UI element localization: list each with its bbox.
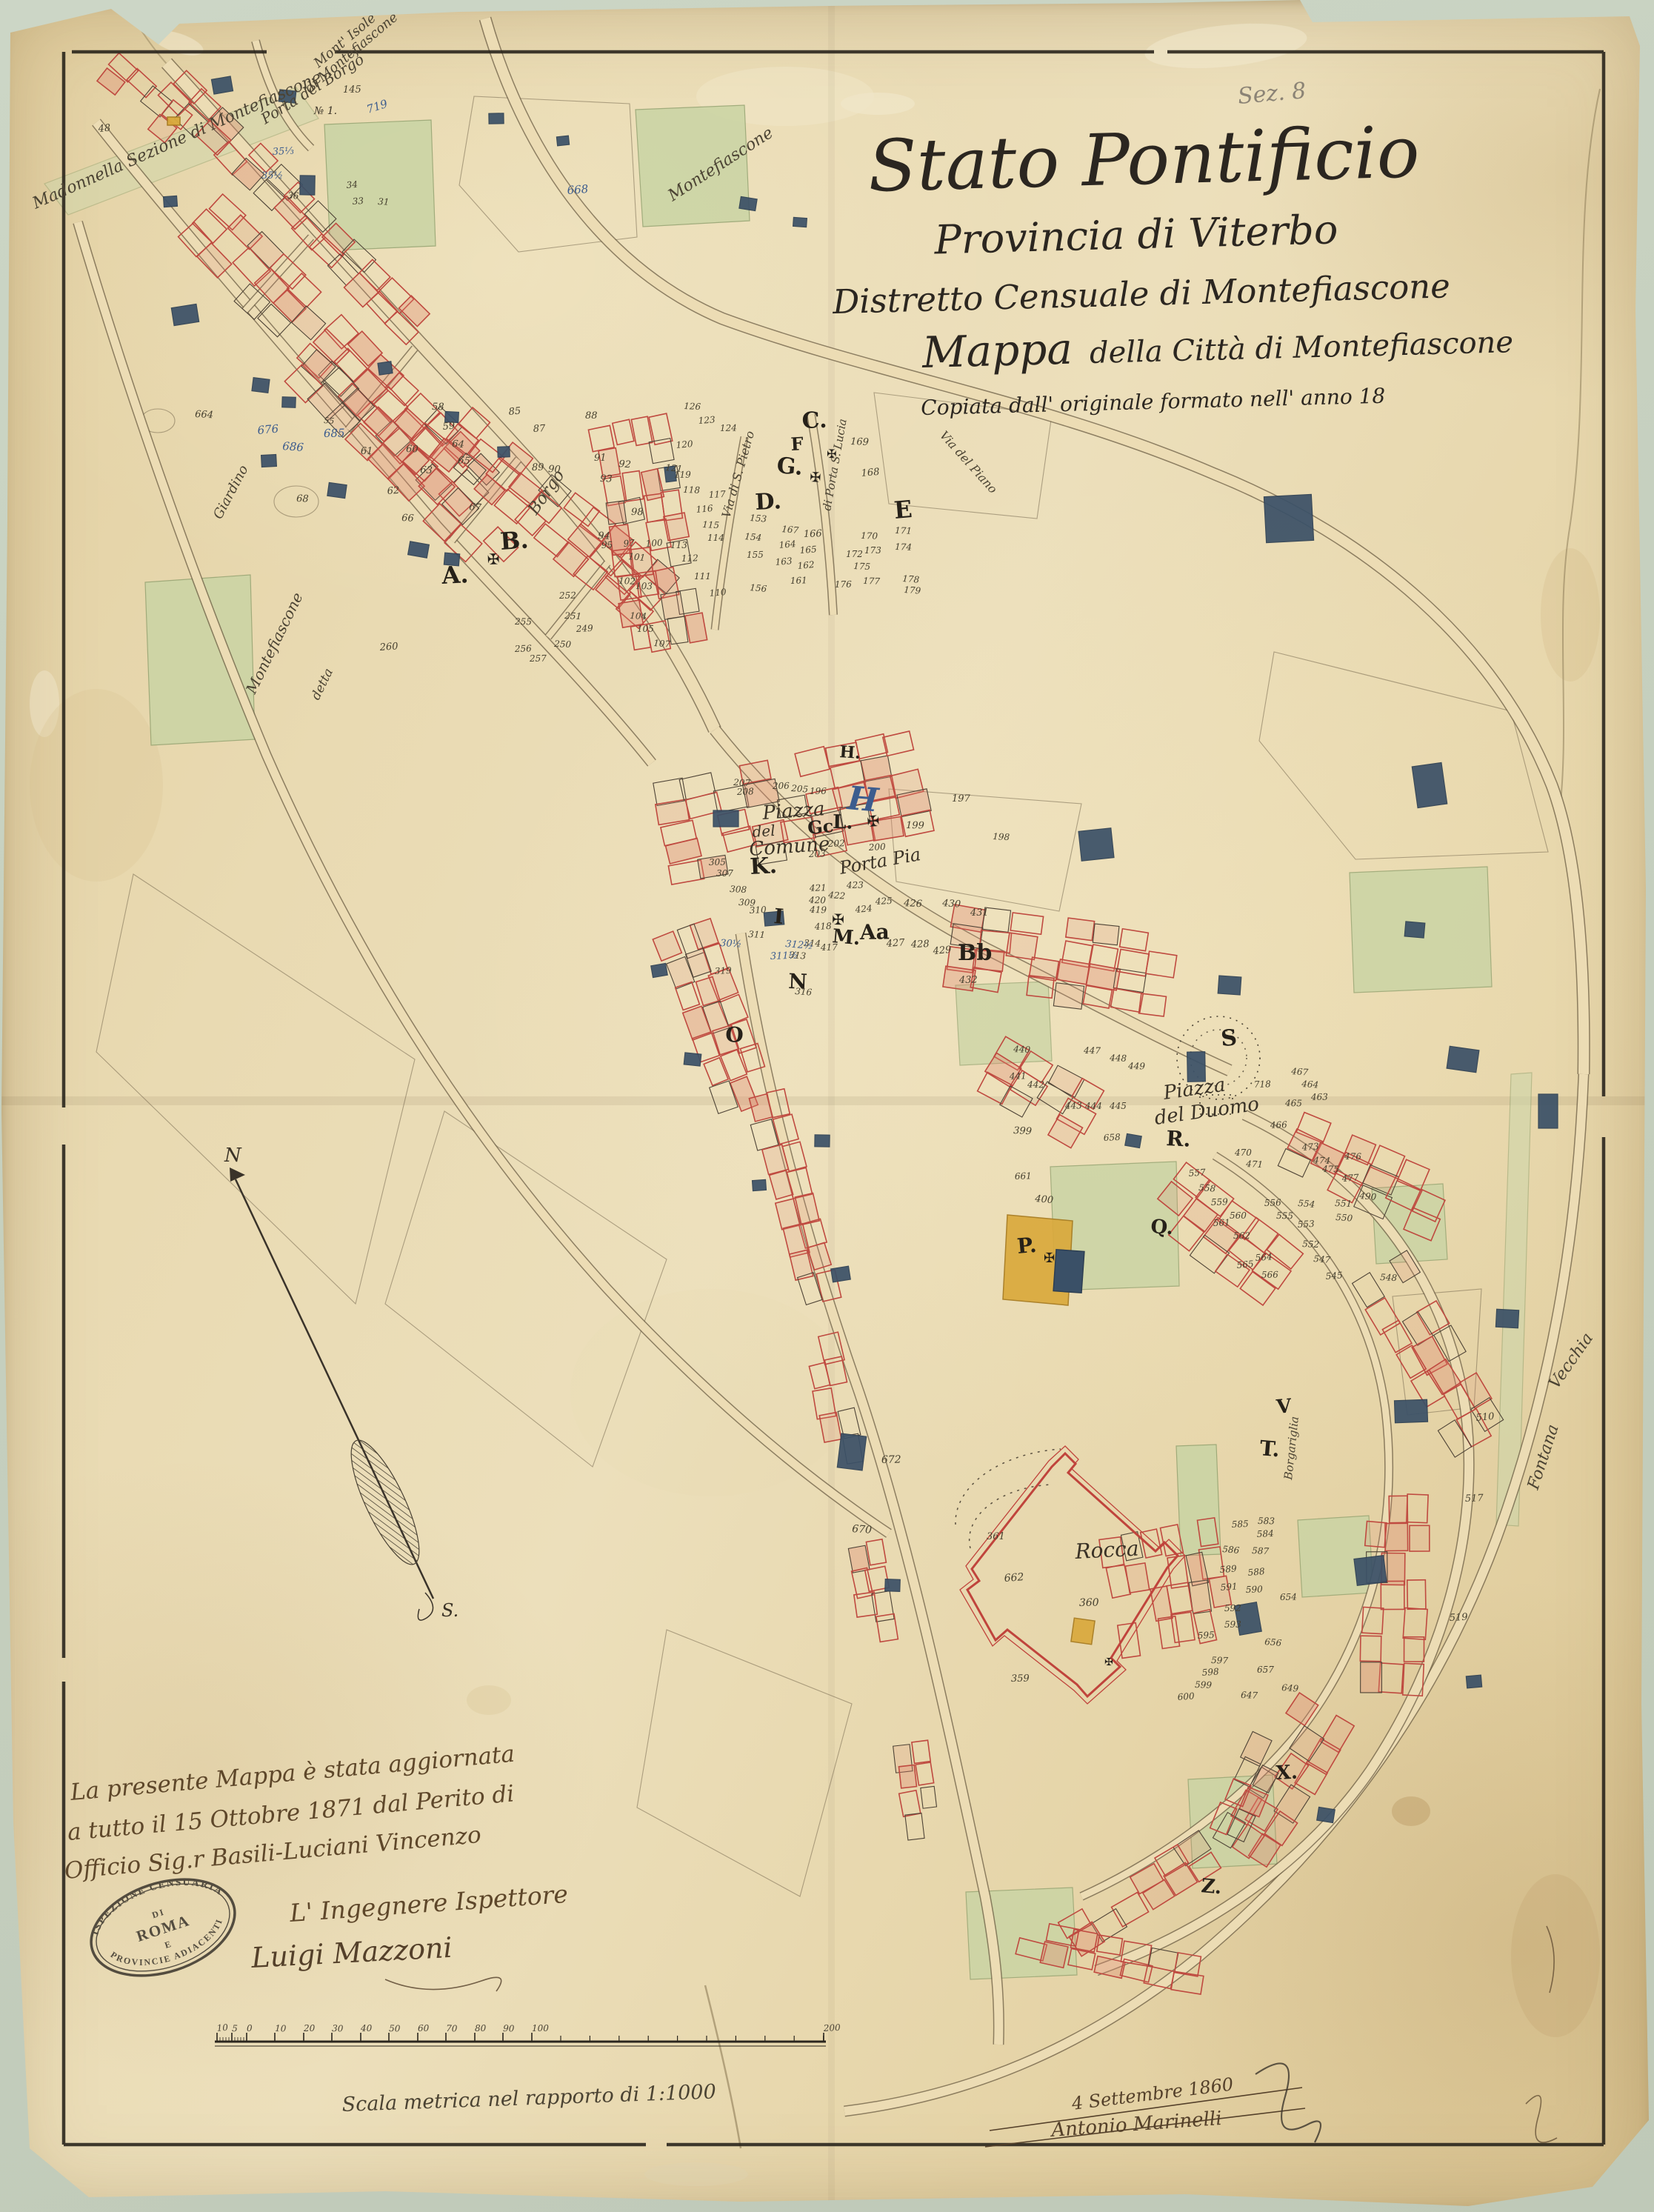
ink-flourish [1255,2063,1321,2142]
building [739,196,757,210]
map-label: 308 [730,884,747,895]
parcel [704,1058,728,1086]
building [1264,494,1313,542]
arrow-feather [339,1433,432,1573]
map-label: 559 [1211,1196,1229,1207]
parcel [1404,1637,1424,1662]
map-label: 111 [694,571,711,582]
map-label: 440 [1013,1044,1031,1055]
map-label: 444 [1084,1101,1102,1111]
map-label: X. [1275,1762,1298,1785]
map-label: 58 [432,402,444,413]
map-label: E [893,495,913,524]
parcel [622,471,643,502]
parcel [1403,1608,1427,1639]
map-label: B. [499,525,530,556]
map-label: 466 [1270,1119,1288,1130]
map-label: 167 [781,524,799,536]
map-label: 432 [958,975,978,986]
parcel [1378,1663,1403,1693]
parcel [916,1762,934,1785]
parcel [127,69,156,98]
map-label: 35⅓ [272,145,294,158]
map-label: 647 [1241,1690,1258,1701]
map-label: 475 [1321,1164,1339,1174]
parcel [1066,918,1095,940]
building [1218,976,1241,995]
map-label: 519 [1449,1612,1468,1624]
map-label: 98 [631,507,644,518]
map-label: 600 [1177,1690,1195,1702]
parcel [1093,924,1119,945]
map-label: 476 [1344,1151,1362,1162]
map-label: 672 [881,1454,901,1466]
map-label: 124 [720,423,737,433]
building [1404,922,1425,938]
map-label: 90 [548,464,561,476]
parcel [848,1545,870,1573]
title-district: Distretto Censuale di Montefiascone [831,266,1450,322]
signature-flourish [385,1977,501,1991]
map-label: 445 [1109,1101,1127,1111]
map-label: 103 [636,581,653,591]
parcel-block [892,1740,941,1841]
map-label: 661 [1015,1170,1032,1182]
parcel [588,425,614,451]
parcel [1120,929,1149,951]
map-label: 556 [1264,1197,1282,1208]
stamp-text-e: E [163,1939,173,1951]
update-note: La presente Mappa è stata aggiornata a t… [64,1741,570,1991]
map-label: 599 [1195,1679,1213,1690]
parcel [721,1050,747,1081]
map-label: 592 [1224,1603,1241,1613]
map-label: Gc [807,815,835,839]
map-label: Via del Piano [937,428,1000,496]
map-label: 662 [1004,1571,1024,1585]
building [885,1579,901,1592]
map-label: 361 [987,1531,1005,1542]
map-label: 179 [904,584,921,596]
map-label: 153 [750,513,767,524]
map-label: 473 [1301,1141,1319,1153]
parcel [876,1614,898,1642]
parcel [653,931,681,961]
map-label: 115 [702,519,720,530]
map-label: 5 [232,2023,238,2033]
map-label: 431 [970,907,989,919]
map-label: 162 [797,559,815,571]
map-label: 656 [1264,1636,1282,1648]
map-label: 88 [585,410,598,422]
map-label: 169 [850,436,869,448]
map-label: 48 [97,123,111,135]
map-label: 113 [670,540,687,550]
map-label: 61 [361,446,373,457]
building [1317,1807,1335,1822]
map-label: 30½ [720,938,742,950]
map-label: R. [1166,1126,1192,1152]
map-label: T. [1258,1436,1281,1462]
map-label: 719 [365,97,390,116]
map-label: 120 [676,439,693,450]
map-label: 170 [861,530,878,542]
map-label: 718 [1254,1079,1272,1090]
map-label: 557 [1188,1167,1206,1179]
map-label: 199 [906,820,924,831]
map-label: 565 [1236,1259,1254,1270]
map-label: 91 [594,453,607,464]
map-label: 208 [736,786,755,797]
title-state: Stato Pontificio [867,110,1421,207]
map-label: 89 [532,462,544,473]
building [164,196,178,207]
map-label: 676 [257,422,280,437]
map-label: 168 [861,467,880,479]
map-label: 465 [1284,1098,1302,1108]
map-label: 97 [623,538,636,549]
building [556,136,569,146]
map-label: 90 [503,2023,515,2034]
map-label: 196 [810,786,827,796]
parcel [679,773,716,800]
map-label: 305 [709,857,726,867]
map-label: 584 [1256,1528,1274,1539]
map-label: 173 [864,545,881,556]
parcel [141,86,173,117]
map-label: 654 [1280,1592,1297,1602]
compass-south-label: S. [441,1600,458,1621]
map-labels: Madonnella Sezione di MontefiasconeMont'… [29,10,1597,2034]
map-label: 60 [406,444,418,456]
map-label: 161 [790,575,807,586]
green-fields [44,87,1532,1979]
map-label: 101 [628,551,646,563]
map-label: Via di S. Pietro [719,429,758,519]
parcel [666,838,701,863]
map-label: Aa [859,919,890,945]
map-label: 560 [1230,1210,1247,1221]
parcel [1407,1494,1428,1523]
map-label: 177 [863,576,881,587]
map-label: 102 [618,576,636,587]
map-label: 100 [532,2023,549,2033]
map-label: 593 [1224,1619,1242,1630]
parcel [866,1539,886,1565]
map-label: 164 [778,539,796,550]
parcel [274,196,307,230]
building [211,76,233,94]
title-province: Provincia di Viterbo [933,206,1338,263]
map-label: 10 [275,2023,287,2034]
map-label: 68 [296,493,309,505]
map-label: 257 [529,653,547,664]
north-arrow: N S. [224,1145,458,1621]
map-label: 67 [469,502,483,513]
building [1078,828,1114,861]
map-label: 65 [458,455,471,467]
map-label: 316 [795,986,813,998]
map-label: 430 [941,898,961,910]
map-label: 467 [1290,1066,1309,1078]
map-label: 552 [1302,1239,1320,1250]
parcel [1146,951,1177,978]
building [651,963,667,977]
map-label: 60 [418,2023,430,2033]
map-label: 123 [698,414,716,426]
map-label: Rocca [1074,1536,1140,1565]
map-label: 429 [932,945,952,957]
map-label: 34 [346,179,358,190]
map-label: V [1275,1395,1293,1419]
map-label: 598 [1201,1666,1219,1678]
map-label: 176 [835,579,853,590]
parcel [1048,1065,1084,1097]
parcel [912,1740,930,1763]
parcel [1048,1115,1083,1148]
map-label: 548 [1380,1272,1398,1283]
map-label: 104 [630,610,647,622]
map-label: L. [833,811,853,833]
map-label: 260 [379,641,399,653]
map-label: 685 [324,427,345,440]
map-label: 256 [514,643,533,654]
map-label: 426 [903,898,923,910]
map-label: 425 [874,896,893,907]
map-label: 112 [681,553,698,564]
map-label: 197 [952,793,971,804]
building [252,378,270,393]
parcel [1365,1521,1387,1547]
map-label: 442 [1027,1079,1044,1090]
parcel [1053,983,1084,1010]
map-label: K. [750,853,778,880]
map-label: 30 [332,2023,344,2034]
map-label: 252 [558,590,576,601]
map-label: H. [839,742,861,763]
map-label: 205 [790,783,809,795]
scanned-map-photo: N S. Stato Pontificio Provincia di Viter… [0,0,1654,2212]
parcel [1385,1523,1408,1550]
map-label: Bb [958,940,992,966]
parcel [1010,913,1043,934]
parcel [1407,1580,1426,1610]
map-label: 545 [1325,1270,1343,1282]
title-copied-line: Copiata dall' originale formato nell' an… [921,384,1386,420]
map-label: 200 [867,842,886,853]
map-label: 172 [846,549,863,559]
map-label: detta [309,666,337,702]
parcel [1389,1496,1407,1522]
parcel [921,1786,937,1808]
map-label: 92 [618,459,632,470]
map-label: № 1. [313,105,337,117]
map-label: 249 [575,623,593,634]
parcel [1361,1662,1382,1693]
map-label: 591 [1220,1581,1238,1593]
map-label: 441 [1009,1070,1027,1082]
map-label: 118 [683,484,701,496]
map-label: 198 [993,831,1010,842]
map-label: 547 [1313,1253,1331,1265]
map-label: P. [1016,1233,1038,1259]
building [1125,1133,1141,1147]
map-label: 590 [1246,1584,1264,1595]
parcel [1286,1693,1318,1725]
scale-bar [215,2033,826,2046]
map-label: 443 [1064,1100,1083,1111]
map-label: 163 [775,556,793,567]
building [1466,1675,1481,1688]
map-label: 85 [508,406,521,418]
map-label: 31 [378,196,390,207]
title-map-rest: della Città di Montefiascone [1089,325,1513,370]
map-label: 448 [1109,1053,1127,1064]
map-label: 62 [387,485,400,497]
map-label: 87 [533,423,546,435]
map-label: 121 [665,462,683,474]
map-canvas: N S. Stato Pontificio Provincia di Viter… [0,0,1654,2212]
map-label: 658 [1103,1132,1121,1143]
map-label: 202 [827,838,845,849]
map-label: 66 [401,513,414,524]
map-label: 145 [343,84,361,96]
parcel-block [844,1539,900,1645]
map-label: 566 [1261,1270,1279,1280]
parcel [661,591,684,619]
map-label: 203 [808,848,827,859]
map-label: 555 [1276,1210,1293,1221]
map-label: 558 [1198,1182,1216,1194]
map-label: 307 [716,868,733,879]
map-label: 10 [216,2022,229,2033]
map-label: 36 [287,190,299,201]
parcel [905,1813,924,1840]
map-label: 359 [1011,1673,1030,1685]
building [498,447,510,458]
map-label: 20 [303,2023,316,2033]
parcel [1040,1942,1068,1968]
map-label: O [725,1022,744,1047]
map-label: D. [755,488,782,516]
map-label: 463 [1310,1092,1329,1102]
map-label: 93 [600,473,613,485]
map-label: 419 [809,905,827,915]
map-label: 50 [389,2023,401,2034]
map-label: 686 [282,439,304,454]
map-label: 117 [708,489,726,500]
map-label: 399 [1013,1125,1033,1137]
parcel [1363,1165,1399,1195]
map-label: 550 [1335,1212,1353,1224]
map-label: 449 [1127,1061,1146,1071]
title-map-word: Mappa [921,324,1073,378]
map-label: 310 [749,905,767,916]
map-label: 255 [514,616,532,627]
parcel [656,799,690,824]
map-label: ✠ [1104,1656,1113,1668]
map-label: 586 [1222,1544,1240,1556]
building [378,362,393,375]
building [837,1433,866,1470]
building [171,304,199,325]
building [684,1053,701,1066]
compass-north-label: N [224,1145,242,1167]
map-label: 464 [1301,1079,1319,1090]
map-label: 311 [748,929,766,940]
map-label: 424 [854,903,873,915]
parcel-block [744,1087,842,1308]
parcel [1360,1636,1381,1661]
map-label: 589 [1219,1563,1237,1575]
map-label: 417 [820,942,838,953]
map-label: 588 [1247,1566,1265,1578]
map-label: C. [801,407,827,434]
map-label: ✠ [832,910,844,928]
map-label: 156 [750,582,767,594]
map-label: 251 [564,610,582,622]
parcel [1410,1525,1430,1551]
map-label: I [773,904,784,929]
map-label: Q. [1150,1216,1174,1239]
map-label: ✠ [810,470,821,486]
map-label: 587 [1252,1545,1270,1556]
map-label: 40 [360,2023,373,2033]
map-label: 583 [1258,1516,1275,1526]
parcel [1117,949,1149,976]
map-label: 420 [808,895,827,905]
building [1354,1556,1387,1586]
building [1412,762,1447,807]
map-label: 311½ [770,950,798,962]
rocca-fortress [956,1446,1185,1704]
map-label: Z. [1200,1875,1222,1899]
map-label: 585 [1231,1519,1249,1530]
north-arrow-head [230,1167,245,1182]
map-label: 55 [324,416,335,426]
map-label: 95 [601,539,613,550]
map-label: 423 [846,880,864,890]
map-label: 105 [637,624,654,634]
map-label: ✠ [867,812,880,830]
scale-caption: Scala metrica nel rapporto di 1:1000 [341,2080,716,2116]
map-label: 206 [772,781,790,791]
parcel [795,747,830,777]
map-label: 110 [709,587,727,599]
map-label: 114 [707,533,724,543]
building [1538,1094,1558,1128]
map-label: 554 [1298,1198,1315,1210]
parcel [1112,1893,1149,1927]
parcel [613,419,634,444]
building [1495,1309,1518,1328]
map-label: G. [776,453,804,481]
building [282,397,296,408]
building [753,1179,767,1190]
parcel [898,1765,916,1788]
building [489,113,504,124]
map-label: ✠ [487,550,500,568]
title-block: Stato Pontificio Provincia di Viterbo Di… [827,108,1515,422]
map-label: 174 [895,542,912,553]
map-label: 595 [1197,1630,1215,1641]
map-label: 100 [645,537,663,549]
parcel [606,501,626,524]
building [1447,1046,1479,1072]
map-label: Borgariglia [1281,1416,1301,1481]
map-label: 510 [1475,1411,1495,1424]
map-label: S [1220,1025,1238,1052]
